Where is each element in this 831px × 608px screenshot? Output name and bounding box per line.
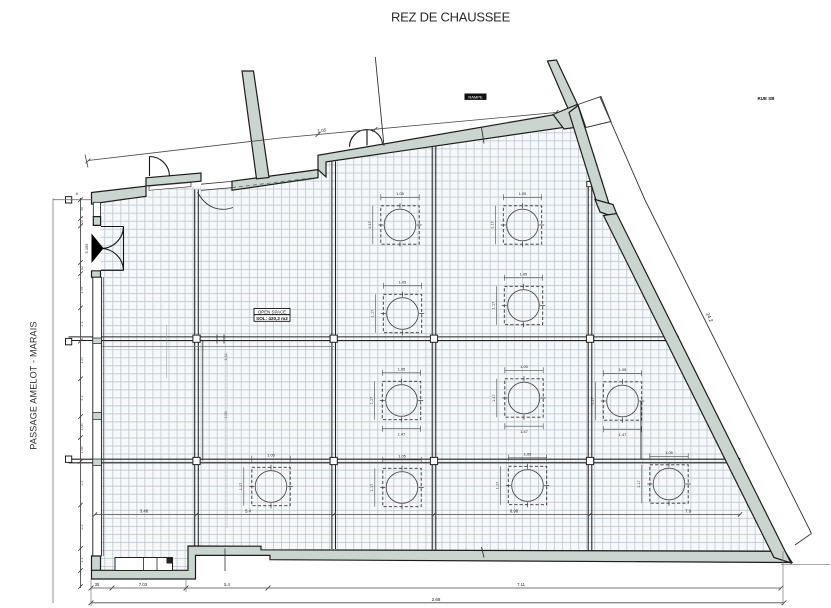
svg-text:PASSAGE AMELOT - MARAIS: PASSAGE AMELOT - MARAIS xyxy=(29,321,39,449)
svg-text:1.17: 1.17 xyxy=(490,221,494,228)
svg-text:5.4: 5.4 xyxy=(245,509,251,514)
svg-text:RAMPE: RAMPE xyxy=(468,95,483,100)
svg-text:6: 6 xyxy=(76,191,79,196)
svg-text:1.17: 1.17 xyxy=(495,482,499,489)
svg-text:25: 25 xyxy=(80,220,84,224)
svg-text:1.05: 1.05 xyxy=(520,272,527,276)
svg-text:6.98: 6.98 xyxy=(510,509,519,514)
svg-text:4.1: 4.1 xyxy=(80,396,84,401)
svg-text:1.05: 1.05 xyxy=(665,451,672,455)
svg-text:1.05: 1.05 xyxy=(524,452,531,456)
svg-text:5.155: 5.155 xyxy=(84,243,89,254)
svg-text:1.94: 1.94 xyxy=(80,287,84,294)
svg-text:1.05: 1.05 xyxy=(317,128,327,134)
svg-text:3.48: 3.48 xyxy=(140,509,149,514)
svg-text:1.47: 1.47 xyxy=(398,433,405,437)
svg-text:1.17: 1.17 xyxy=(370,484,374,491)
svg-text:2.68: 2.68 xyxy=(432,597,441,602)
svg-text:1.17: 1.17 xyxy=(369,397,373,404)
svg-text:1.17: 1.17 xyxy=(492,394,496,401)
svg-text:1.05: 1.05 xyxy=(398,367,405,371)
svg-text:35: 35 xyxy=(95,582,100,587)
svg-text:7.11: 7.11 xyxy=(517,582,526,587)
svg-text:1.05: 1.05 xyxy=(520,365,527,369)
svg-text:38: 38 xyxy=(80,207,84,211)
svg-text:1.17: 1.17 xyxy=(637,480,641,487)
svg-text:7.03: 7.03 xyxy=(139,582,148,587)
svg-text:1.1: 1.1 xyxy=(80,558,84,563)
svg-text:1.06: 1.06 xyxy=(80,424,84,431)
svg-text:1.05: 1.05 xyxy=(519,192,526,196)
svg-text:1.05: 1.05 xyxy=(398,454,405,458)
svg-text:1.68: 1.68 xyxy=(80,447,84,454)
svg-text:1.17: 1.17 xyxy=(491,302,495,309)
svg-text:REZ DE CHAUSSEE: REZ DE CHAUSSEE xyxy=(391,10,511,25)
svg-text:1.47: 1.47 xyxy=(520,430,527,434)
svg-text:1.05: 1.05 xyxy=(619,368,626,372)
svg-text:1.17: 1.17 xyxy=(239,483,243,490)
svg-text:5.4: 5.4 xyxy=(224,582,230,587)
svg-text:1.87: 1.87 xyxy=(80,357,84,364)
svg-text:1.05: 1.05 xyxy=(267,453,274,457)
svg-text:1.06: 1.06 xyxy=(224,412,228,419)
svg-text:1.47: 1.47 xyxy=(619,433,626,437)
svg-text:OPEN SPACE: OPEN SPACE xyxy=(258,310,286,315)
svg-text:SOL: 420,2 m2: SOL: 420,2 m2 xyxy=(256,316,288,321)
svg-text:2.1: 2.1 xyxy=(80,322,84,327)
svg-text:1.17: 1.17 xyxy=(368,221,372,228)
svg-text:82: 82 xyxy=(80,266,84,270)
svg-text:2.4: 2.4 xyxy=(80,481,84,486)
svg-text:RUE SB: RUE SB xyxy=(757,96,775,101)
svg-text:1.17: 1.17 xyxy=(590,397,594,404)
svg-text:1.05: 1.05 xyxy=(399,280,406,284)
svg-text:1.05: 1.05 xyxy=(396,192,403,196)
svg-text:1.17: 1.17 xyxy=(370,310,374,317)
svg-text:7.9: 7.9 xyxy=(685,509,691,514)
svg-text:1.32: 1.32 xyxy=(224,354,228,361)
svg-text:2.2: 2.2 xyxy=(80,525,84,530)
